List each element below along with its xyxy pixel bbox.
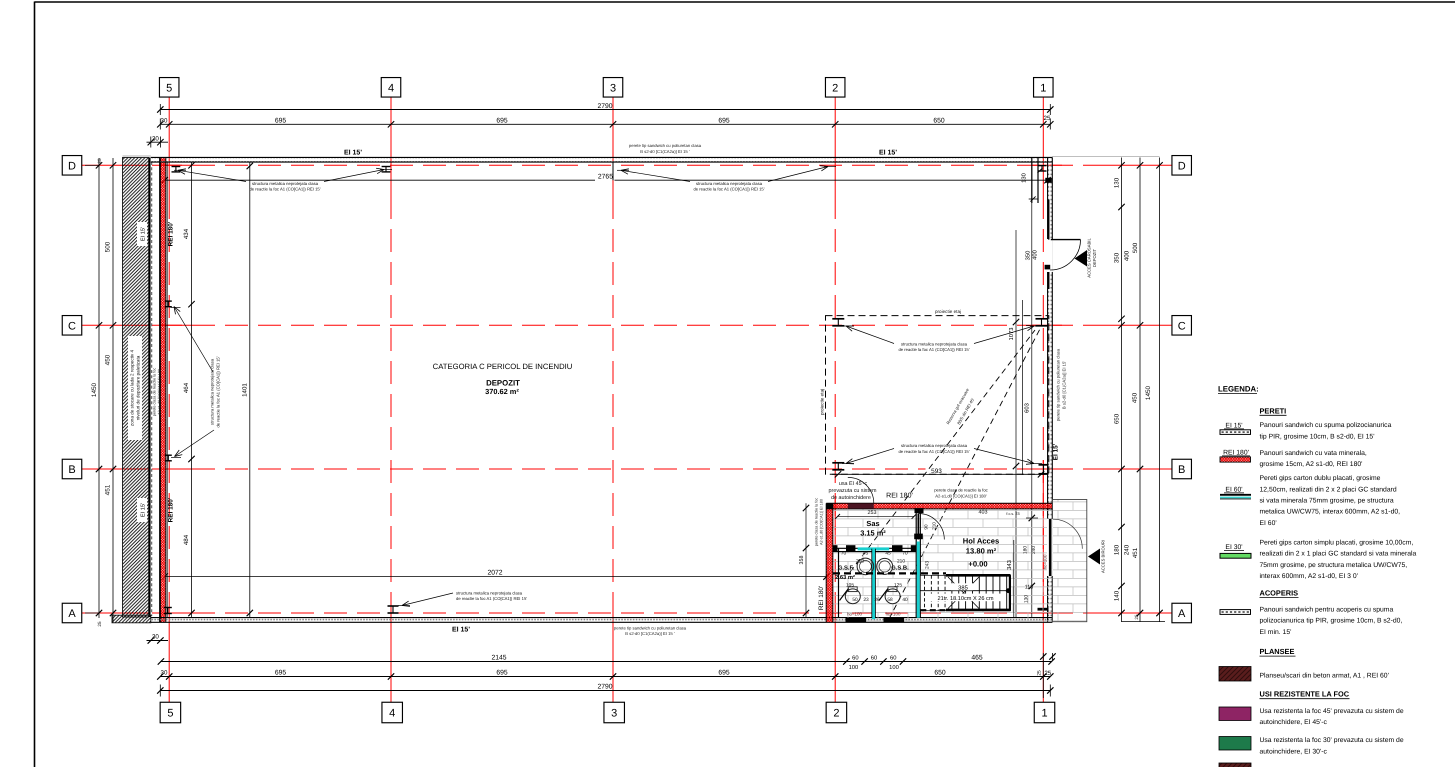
- svg-text:grosime 15cm, A2 s1-d0, REI 18: grosime 15cm, A2 s1-d0, REI 180': [1260, 461, 1363, 468]
- svg-text:Pereti gips carton simplu plac: Pereti gips carton simplu placati, grosi…: [1260, 540, 1414, 547]
- svg-text:26: 26: [874, 597, 880, 603]
- svg-text:1073: 1073: [1008, 328, 1015, 341]
- svg-text:Hol Acces: Hol Acces: [963, 536, 999, 545]
- svg-text:EI 15': EI 15': [344, 150, 362, 157]
- svg-text:451: 451: [105, 484, 112, 495]
- svg-text:5: 5: [166, 82, 172, 94]
- svg-text:EI 15': EI 15': [1225, 422, 1242, 429]
- svg-text:usa EI 45'-c: usa EI 45'-c: [839, 481, 868, 487]
- svg-text:si vata minerala 75mm grosime,: si vata minerala 75mm grosime, pe struct…: [1260, 498, 1394, 505]
- svg-text:Panouri sandwich cu spuma poli: Panouri sandwich cu spuma polizocianuric…: [1260, 422, 1392, 429]
- svg-text:465: 465: [971, 654, 983, 661]
- svg-text:EI 60': EI 60': [1225, 486, 1242, 493]
- svg-text:B s2-d0 [C1(CA2a)] EI 15': B s2-d0 [C1(CA2a)] EI 15': [1062, 361, 1067, 409]
- svg-text:perete clasa de reactie la foc: perete clasa de reactie la foc: [934, 488, 988, 493]
- svg-text:1: 1: [1041, 707, 1047, 719]
- svg-text:58: 58: [887, 597, 893, 603]
- svg-text:CATEGORIA C PERICOL DE INCENDI: CATEGORIA C PERICOL DE INCENDIU: [433, 362, 573, 371]
- svg-text:prevazuta cu sistem: prevazuta cu sistem: [829, 488, 877, 494]
- svg-text:perete tip sandwich cu poliure: perete tip sandwich cu poliuretan clasa: [614, 625, 687, 630]
- svg-text:G.S.B.: G.S.B.: [891, 564, 909, 571]
- svg-text:EI 15': EI 15': [879, 150, 897, 157]
- svg-text:structura metalica neprotejata: structura metalica neprotejata clasa: [210, 358, 215, 425]
- svg-text:25: 25: [1037, 670, 1043, 676]
- svg-text:structura metalica neprotejata: structura metalica neprotejata clasa: [901, 341, 968, 346]
- svg-text:130: 130: [1113, 177, 1120, 188]
- svg-text:603: 603: [1024, 403, 1031, 413]
- svg-text:perete clasa de reactie la foc: perete clasa de reactie la foc: [153, 368, 157, 417]
- svg-text:D: D: [68, 160, 76, 172]
- svg-text:de reactie la foc A1 (CO[CA1]): de reactie la foc A1 (CO[CA1]) REI 15': [249, 187, 320, 192]
- svg-text:450: 450: [105, 354, 112, 365]
- svg-text:3: 3: [611, 707, 617, 719]
- svg-text:70: 70: [902, 551, 908, 557]
- svg-text:2: 2: [832, 82, 838, 94]
- svg-text:695: 695: [496, 670, 508, 677]
- svg-text:403: 403: [979, 510, 988, 516]
- svg-text:1: 1: [1040, 82, 1046, 94]
- svg-text:Pereti gips carton dublu placa: Pereti gips carton dublu placati, grosim…: [1260, 475, 1381, 482]
- svg-text:25: 25: [1134, 614, 1139, 620]
- svg-text:13.80 m²: 13.80 m²: [966, 547, 997, 556]
- svg-text:EI 15': EI 15': [141, 227, 147, 241]
- svg-text:autoinchidere, EI 45'-c: autoinchidere, EI 45'-c: [1260, 719, 1328, 726]
- svg-text:350: 350: [1025, 251, 1032, 261]
- svg-text:240: 240: [1031, 546, 1037, 554]
- svg-text:30: 30: [161, 670, 168, 677]
- svg-text:25: 25: [1044, 115, 1051, 122]
- svg-text:4: 4: [388, 82, 394, 94]
- svg-text:358: 358: [799, 556, 805, 565]
- svg-text:45: 45: [885, 551, 891, 557]
- svg-text:ho=100: ho=100: [1043, 554, 1048, 569]
- svg-text:REI 180': REI 180': [818, 586, 825, 610]
- svg-text:350: 350: [1113, 252, 1120, 263]
- svg-text:B s2-d0 [C1(CA2a)] EI 15 ': B s2-d0 [C1(CA2a)] EI 15 ': [640, 149, 690, 154]
- svg-text:EI 15': EI 15': [141, 503, 147, 517]
- svg-text:70: 70: [841, 551, 847, 557]
- svg-text:60: 60: [852, 655, 858, 662]
- svg-text:interax 600mm, A2 s1-d0, EI 3: interax 600mm, A2 s1-d0, EI 3 0': [1260, 573, 1358, 580]
- svg-text:2790: 2790: [597, 103, 612, 110]
- svg-text:75mm grosime, pe structura met: 75mm grosime, pe structura metalica UW/C…: [1260, 562, 1408, 569]
- svg-text:464: 464: [183, 382, 190, 393]
- svg-text:370.62 m²: 370.62 m²: [485, 387, 519, 396]
- svg-text:25: 25: [1044, 670, 1051, 677]
- svg-text:253: 253: [868, 510, 877, 516]
- svg-text:EI 30': EI 30': [1225, 544, 1242, 551]
- svg-text:metalica UW/CW75, interax 600m: metalica UW/CW75, interax 600mm, A2 s1-d…: [1260, 509, 1401, 516]
- svg-text:400: 400: [1031, 250, 1038, 260]
- svg-text:A2-s1,d0 [CO(CA1)] EI 180': A2-s1,d0 [CO(CA1)] EI 180': [935, 494, 987, 499]
- svg-text:A: A: [1178, 608, 1186, 620]
- svg-text:210: 210: [897, 558, 905, 564]
- svg-text:REI 180': REI 180': [886, 492, 913, 499]
- svg-text:450: 450: [1132, 392, 1139, 403]
- svg-text:proiectie etaj: proiectie etaj: [935, 309, 961, 314]
- svg-text:240: 240: [1124, 544, 1131, 555]
- svg-text:EI min. 15': EI min. 15': [1260, 629, 1292, 636]
- svg-text:25: 25: [97, 158, 102, 164]
- svg-text:perete tip sandwich cu poliure: perete tip sandwich cu poliuretan clasa: [629, 143, 702, 148]
- svg-text:f.c.s. 23: f.c.s. 23: [1006, 512, 1019, 516]
- svg-text:2: 2: [833, 707, 839, 719]
- svg-text:385: 385: [958, 584, 968, 591]
- svg-text:180: 180: [1113, 544, 1120, 555]
- svg-text:2.63 m²: 2.63 m²: [835, 574, 855, 581]
- svg-text:30: 30: [152, 135, 159, 142]
- svg-text:90: 90: [924, 524, 929, 530]
- svg-text:2145: 2145: [491, 654, 506, 661]
- svg-text:500: 500: [105, 241, 112, 252]
- svg-text:perete clasa de reactie la foc: perete clasa de reactie la foc: [815, 498, 819, 547]
- svg-text:USI REZISTENTE LA FOC: USI REZISTENTE LA FOC: [1260, 690, 1350, 699]
- svg-text:60: 60: [890, 655, 896, 662]
- svg-text:structura metalica neprotejata: structura metalica neprotejata clasa: [696, 181, 763, 186]
- svg-text:A2-s1,d0 [CO(CA1)] EI 180: A2-s1,d0 [CO(CA1)] EI 180: [158, 369, 162, 415]
- svg-text:5: 5: [167, 707, 173, 719]
- svg-text:3: 3: [610, 82, 616, 94]
- svg-text:structura metalica neprotejata: structura metalica neprotejata clasa: [456, 590, 523, 595]
- svg-text:451: 451: [1132, 547, 1139, 558]
- svg-text:21tr. 18.10cm X 26 cm: 21tr. 18.10cm X 26 cm: [938, 596, 994, 602]
- svg-text:B: B: [68, 464, 75, 476]
- svg-text:500: 500: [1132, 242, 1139, 253]
- svg-text:structura metalica neprotejata: structura metalica neprotejata clasa: [901, 443, 968, 448]
- svg-text:243: 243: [925, 561, 931, 569]
- svg-text:695: 695: [496, 117, 508, 124]
- svg-text:3.15 m²: 3.15 m²: [860, 529, 886, 538]
- svg-text:4: 4: [389, 707, 395, 719]
- svg-text:650: 650: [934, 670, 946, 677]
- svg-text:perete tip sandwich cu poliure: perete tip sandwich cu poliuretan clasa: [1056, 348, 1061, 421]
- svg-text:B s2-d0 [C1(CA2a)] EI 15 ': B s2-d0 [C1(CA2a)] EI 15 ': [625, 631, 675, 636]
- svg-text:ho=100: ho=100: [886, 612, 901, 617]
- svg-text:EI 15': EI 15': [1053, 443, 1060, 460]
- svg-text:2765: 2765: [598, 174, 613, 181]
- svg-text:DEPOZIT: DEPOZIT: [1092, 248, 1097, 267]
- svg-text:EI 60': EI 60': [1260, 520, 1277, 527]
- svg-text:ACOPERIS: ACOPERIS: [1260, 588, 1299, 597]
- svg-text:de reactie la foc A1 (CO[CA1]): de reactie la foc A1 (CO[CA1]) REI 15': [693, 187, 764, 192]
- svg-text:A: A: [68, 608, 76, 620]
- svg-text:210: 210: [856, 558, 864, 564]
- svg-text:ACCES CAROSABIL: ACCES CAROSABIL: [1087, 238, 1092, 278]
- svg-text:30: 30: [161, 117, 168, 124]
- svg-text:130: 130: [1021, 173, 1028, 183]
- svg-text:695: 695: [275, 117, 287, 124]
- svg-text:100: 100: [849, 664, 859, 671]
- svg-text:40: 40: [902, 597, 908, 603]
- svg-text:695: 695: [275, 670, 287, 677]
- svg-text:343: 343: [1006, 560, 1013, 570]
- svg-text:D: D: [1178, 160, 1186, 172]
- svg-text:PLANSEE: PLANSEE: [1260, 647, 1295, 656]
- svg-text:LEGENDA:: LEGENDA:: [1218, 385, 1259, 394]
- svg-text:2072: 2072: [487, 570, 502, 577]
- svg-text:zona de stocare cu lada 2 resp: zona de stocare cu lada 2 respectiv 4: [130, 350, 135, 427]
- svg-text:+0.00: +0.00: [968, 560, 987, 569]
- svg-text:45: 45: [863, 551, 869, 557]
- svg-text:de reactie la foc A1 (CO[CA1]): de reactie la foc A1 (CO[CA1]) REI 15': [456, 596, 527, 601]
- svg-text:A2-s1,d0 [CO(CA1)] EI 180: A2-s1,d0 [CO(CA1)] EI 180: [820, 499, 824, 545]
- svg-text:2790: 2790: [597, 684, 612, 691]
- svg-text:B: B: [1178, 464, 1185, 476]
- svg-text:650: 650: [1113, 413, 1120, 424]
- svg-text:400: 400: [1124, 250, 1131, 261]
- svg-text:ACCES BIROURI: ACCES BIROURI: [1101, 540, 1106, 573]
- svg-text:de reactie la foc A1 (CO[CA1]): de reactie la foc A1 (CO[CA1]) REI 15': [898, 347, 969, 352]
- svg-text:autoinchidere, EI 30'-c: autoinchidere, EI 30'-c: [1260, 748, 1328, 755]
- svg-text:118: 118: [1025, 585, 1034, 591]
- svg-text:C: C: [1178, 320, 1186, 332]
- svg-text:de reactie la foc A1 (CO[CA1]): de reactie la foc A1 (CO[CA1]) REI 15': [216, 356, 221, 427]
- svg-text:650: 650: [933, 117, 945, 124]
- svg-text:REI 180': REI 180': [168, 497, 175, 522]
- svg-text:210: 210: [932, 522, 937, 530]
- svg-text:484: 484: [183, 534, 190, 545]
- svg-text:125: 125: [894, 582, 902, 588]
- svg-text:Panouri sandwich pentru acoper: Panouri sandwich pentru acoperis cu spum…: [1260, 606, 1394, 613]
- svg-text:695: 695: [718, 670, 730, 677]
- svg-text:100: 100: [889, 664, 899, 671]
- svg-text:25: 25: [97, 621, 102, 627]
- svg-text:polizocianurica tip PIR, grosi: polizocianurica tip PIR, grosime 10cm, B…: [1260, 618, 1403, 625]
- svg-text:12,50cm, realizati din 2 x 2 p: 12,50cm, realizati din 2 x 2 placi GC st…: [1260, 486, 1397, 493]
- svg-text:REI 180': REI 180': [1223, 449, 1249, 456]
- svg-text:C: C: [68, 320, 76, 332]
- svg-text:Usa rezistenta la foc 30' prev: Usa rezistenta la foc 30' prevazuta cu s…: [1260, 737, 1404, 744]
- svg-text:EI 15': EI 15': [452, 626, 470, 633]
- svg-text:realizati din 2 x 1 placi GC s: realizati din 2 x 1 placi GC standard si…: [1260, 551, 1417, 558]
- svg-text:de autoinchidere: de autoinchidere: [831, 495, 871, 501]
- svg-text:695: 695: [718, 117, 730, 124]
- svg-text:1450: 1450: [1145, 385, 1152, 400]
- svg-text:structura metalica neprotejata: structura metalica neprotejata clasa: [252, 181, 319, 186]
- svg-text:niveluri de depozitare paletiz: niveluri de depozitare paletizata: [136, 355, 141, 420]
- svg-text:Usa rezistenta la foc 45' prev: Usa rezistenta la foc 45' prevazuta cu s…: [1260, 708, 1404, 715]
- svg-text:30: 30: [152, 633, 159, 640]
- svg-text:23: 23: [863, 597, 869, 603]
- svg-text:140: 140: [1113, 590, 1120, 601]
- svg-text:REI 180': REI 180': [168, 221, 175, 246]
- svg-text:105: 105: [846, 582, 854, 588]
- svg-text:proiectie etaj: proiectie etaj: [820, 389, 825, 415]
- svg-text:434: 434: [183, 228, 190, 239]
- svg-text:1450: 1450: [91, 382, 98, 397]
- svg-text:Planseu/scari din beton armat,: Planseu/scari din beton armat, A1 , REI …: [1260, 672, 1389, 679]
- svg-text:130: 130: [1024, 595, 1030, 603]
- svg-text:Panouri sandwich cu vata miner: Panouri sandwich cu vata minerala,: [1260, 450, 1367, 457]
- svg-text:G.S.F.: G.S.F.: [838, 564, 854, 571]
- svg-text:de reactie la foc A1 (CO[CA1]): de reactie la foc A1 (CO[CA1]) REI 15': [898, 449, 969, 454]
- svg-text:180: 180: [1023, 546, 1029, 554]
- svg-text:Sas: Sas: [866, 519, 879, 528]
- svg-text:ho=100: ho=100: [847, 612, 862, 617]
- svg-text:1401: 1401: [242, 383, 249, 397]
- svg-text:tip PIR, grosime 10cm, B s2-d0: tip PIR, grosime 10cm, B s2-d0, EI 15': [1260, 433, 1375, 440]
- svg-text:60: 60: [871, 655, 877, 662]
- svg-text:PERETI: PERETI: [1260, 406, 1287, 415]
- svg-text:50: 50: [852, 597, 858, 603]
